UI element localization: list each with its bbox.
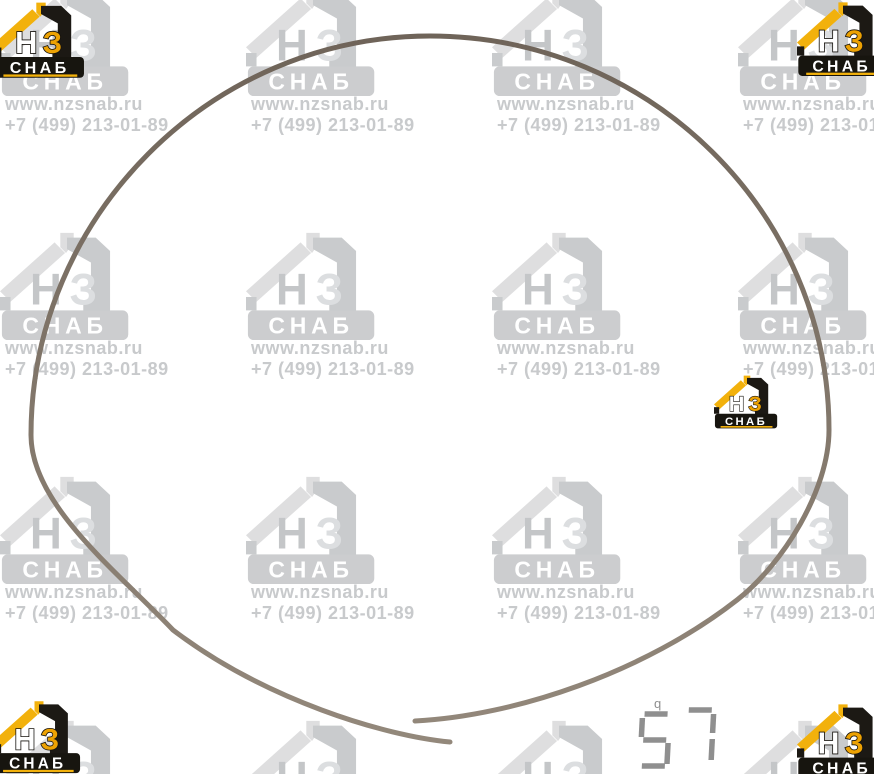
brand-logo-mid-right bbox=[714, 373, 780, 430]
digit-segment bbox=[711, 739, 712, 760]
product-photo-canvas: Н З СНАБ www.nzsnab.ru+7 (499) 213-01-89… bbox=[0, 0, 874, 774]
brand-logo-top-left bbox=[0, 0, 88, 80]
brand-logo-bottom-right bbox=[797, 701, 874, 774]
digit-segment bbox=[713, 714, 714, 733]
brand-logo-graphic bbox=[797, 0, 874, 78]
brand-logo-bottom-left bbox=[0, 698, 84, 774]
brand-logo-graphic bbox=[714, 373, 780, 430]
seven-segment-digits bbox=[640, 710, 714, 766]
superscript-mark: q bbox=[654, 696, 661, 711]
brand-logo-graphic bbox=[797, 701, 874, 774]
brand-logo-graphic bbox=[0, 0, 88, 80]
brand-logo-top-right bbox=[797, 0, 874, 78]
brand-logo-graphic bbox=[0, 698, 84, 774]
digit-segment bbox=[641, 718, 642, 737]
digit-segment bbox=[667, 743, 668, 764]
